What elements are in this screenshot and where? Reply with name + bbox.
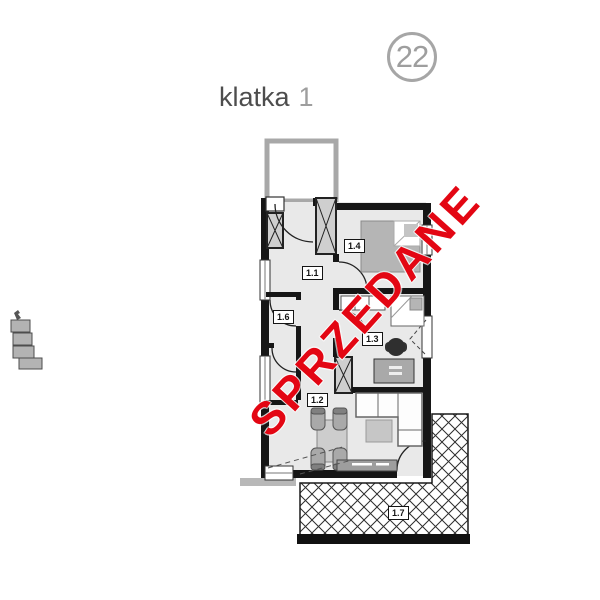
site-locator-icon: [11, 310, 42, 369]
floor-plan-page: 22 klatka1 1.1 1.4 1.6 1.3 1.2 1.7 SPRZE…: [0, 0, 600, 600]
room-label-1-7: 1.7: [388, 506, 409, 520]
unit-number-badge: 22: [387, 32, 437, 82]
staircase-title: klatka1: [219, 82, 314, 113]
staircase-number: 1: [299, 82, 314, 112]
coffee-table-symbol: [366, 420, 392, 442]
room-label-1-6: 1.6: [273, 310, 294, 324]
column-center: [316, 198, 336, 254]
column-left: [267, 213, 283, 248]
room-label-1-4: 1.4: [344, 239, 365, 253]
room-label-1-1: 1.1: [302, 266, 323, 280]
staircase-label: klatka: [219, 82, 290, 112]
desk-symbol: [374, 359, 414, 383]
